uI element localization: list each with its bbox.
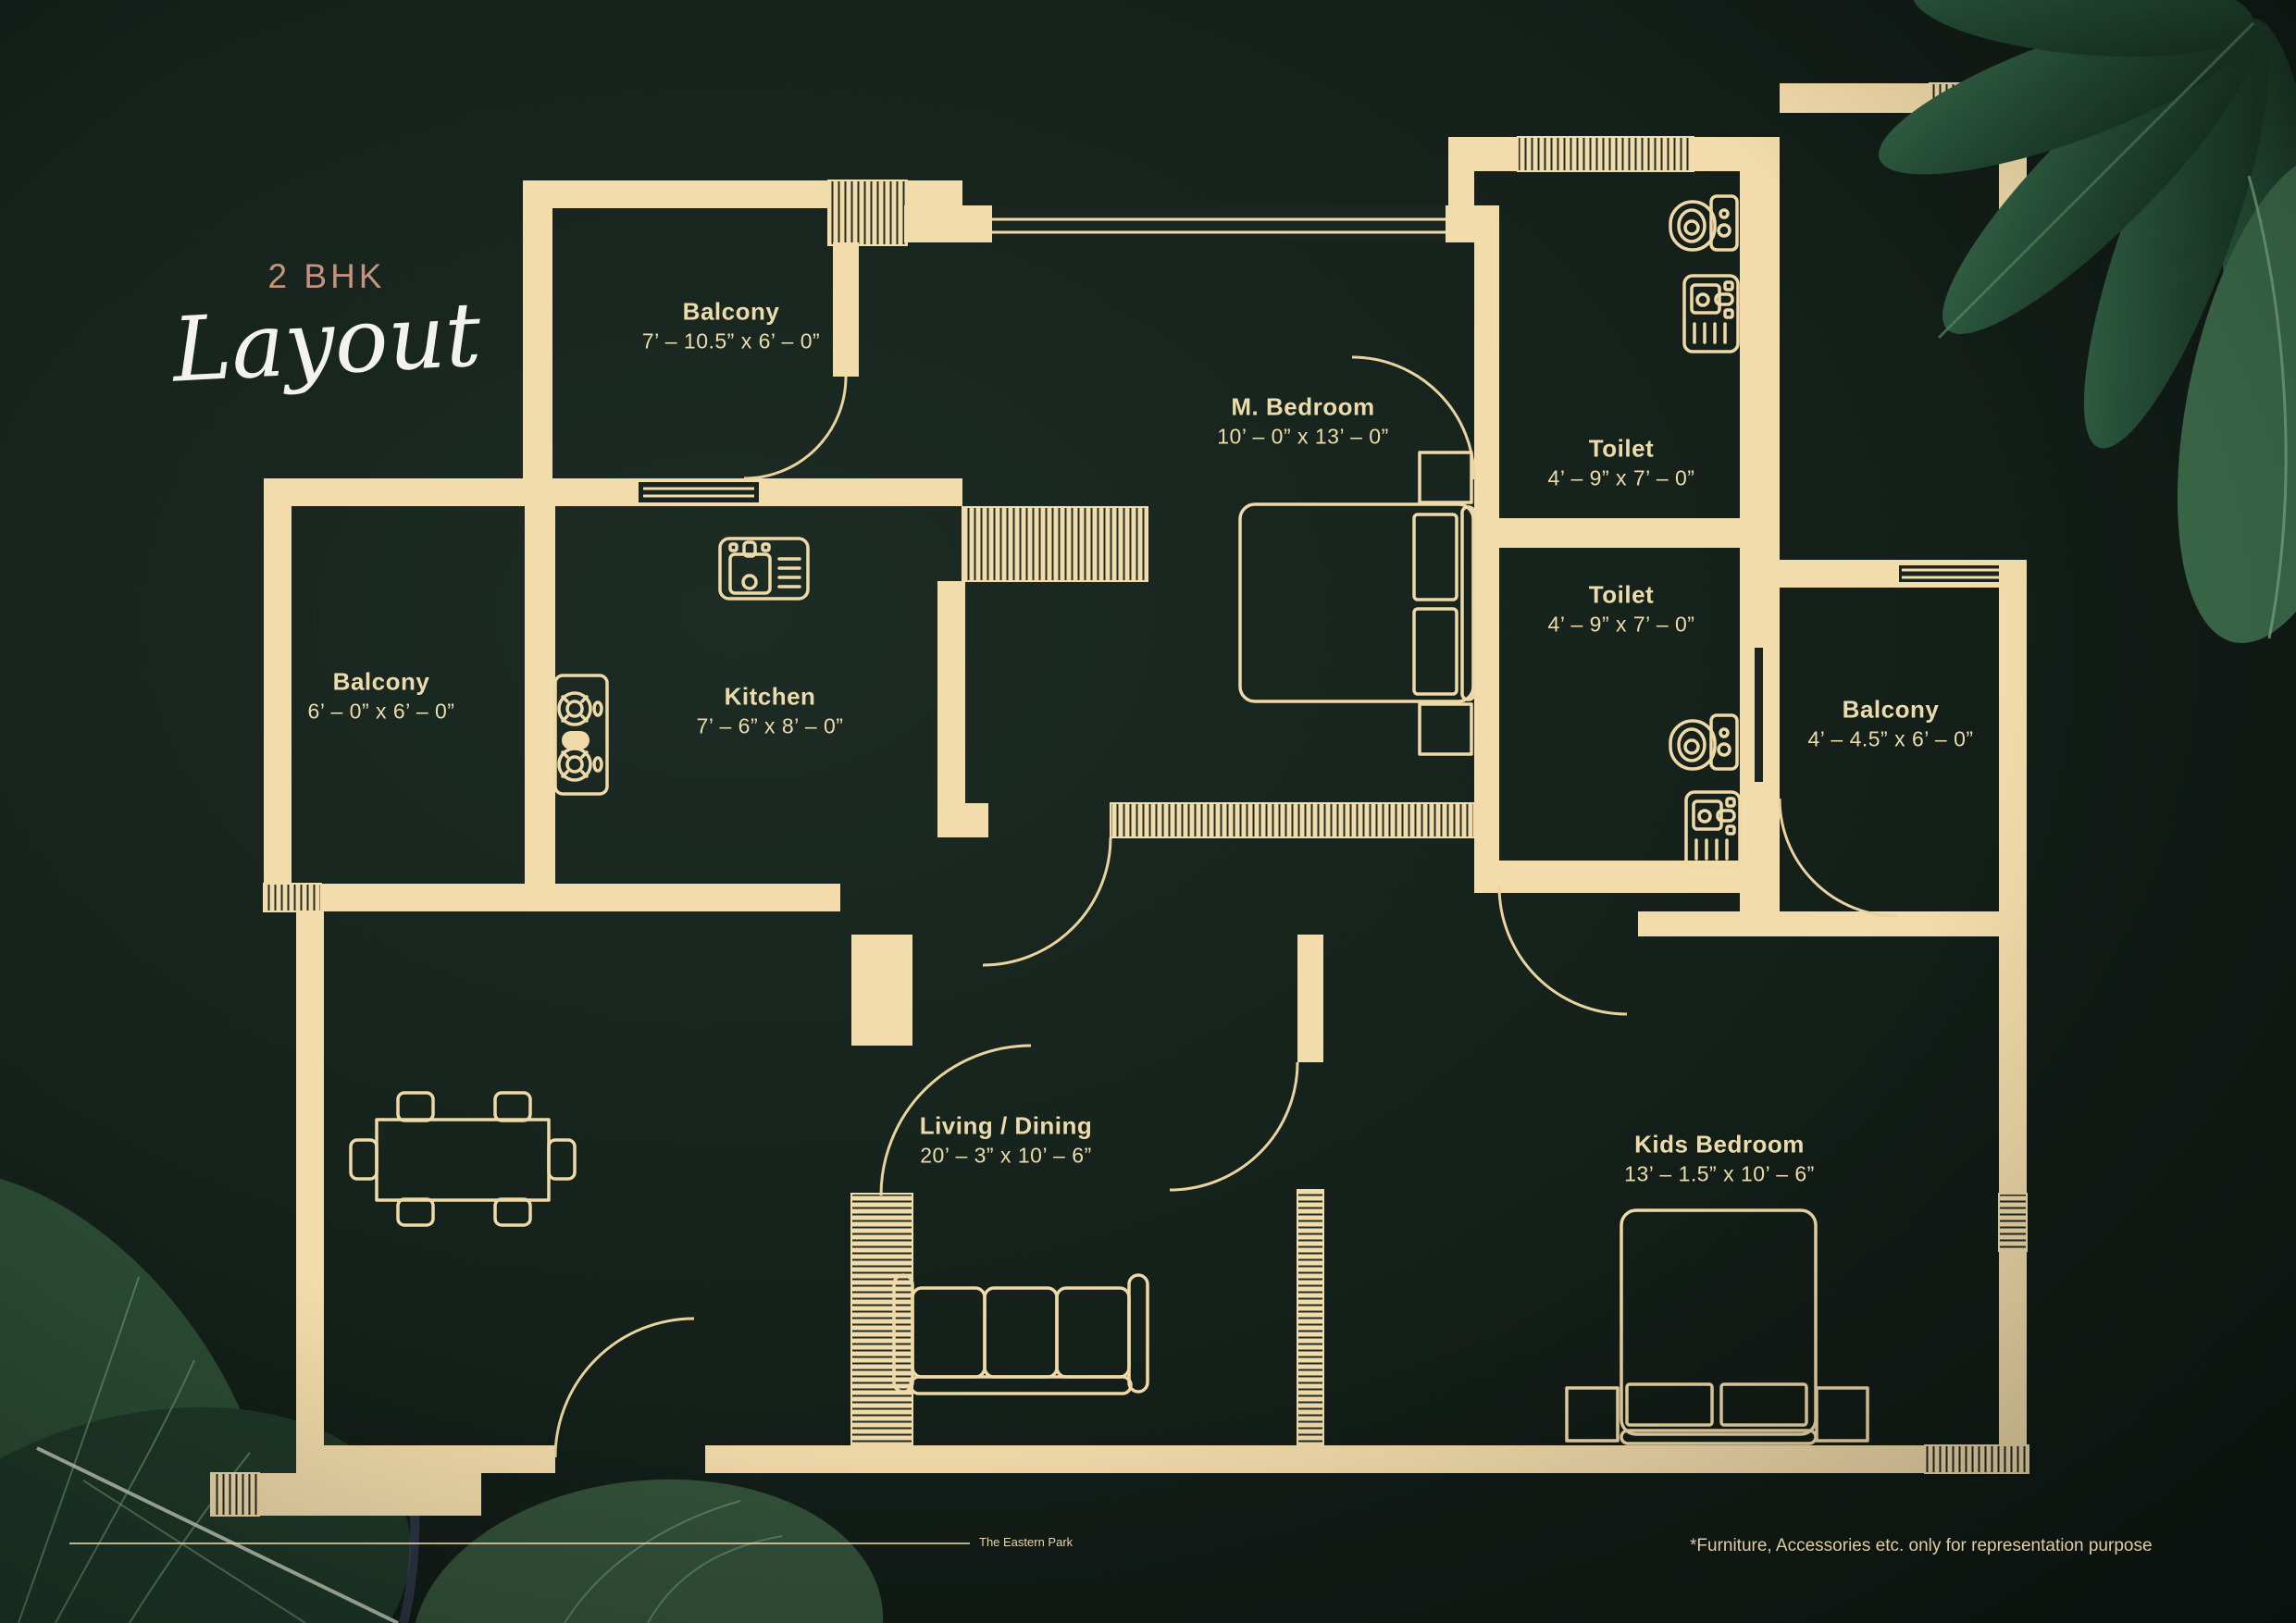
room-name: Balcony — [642, 298, 820, 327]
porch-step — [257, 1473, 481, 1516]
footer-rule — [69, 1542, 970, 1544]
room-dims: 4’ – 4.5” x 6’ – 0” — [1807, 727, 1973, 752]
nightstand-icon — [1420, 452, 1471, 502]
room-dims: 4’ – 9” x 7’ – 0” — [1548, 613, 1695, 638]
room-label-balcony-right: Balcony 4’ – 4.5” x 6’ – 0” — [1807, 696, 1973, 752]
room-dims: 7’ – 10.5” x 6’ – 0” — [642, 329, 820, 354]
room-name: Balcony — [1807, 696, 1973, 725]
hatched-wall — [1999, 1194, 2027, 1251]
room-label-balcony-left: Balcony 6’ – 0” x 6’ – 0” — [308, 668, 455, 725]
hatched-wall — [1111, 803, 1474, 837]
room-dims: 13’ – 1.5” x 10’ – 6” — [1624, 1162, 1815, 1187]
floor-plan-canvas — [0, 0, 2296, 1623]
room-dims: 6’ – 0” x 6’ – 0” — [308, 700, 455, 725]
nightstand-icon — [1817, 1388, 1868, 1441]
hatched-wall — [851, 1194, 912, 1445]
wardrobe-hatch — [962, 507, 1148, 581]
door-arc-kids-bedroom — [1170, 1062, 1297, 1190]
room-name: Kitchen — [697, 683, 844, 712]
room-dims: 10’ – 0” x 13’ – 0” — [1217, 425, 1389, 450]
room-name: M. Bedroom — [1217, 393, 1389, 422]
hatched-wall — [1925, 1445, 2029, 1473]
room-dims: 20’ – 3” x 10’ – 6” — [920, 1144, 1093, 1169]
hatched-wall — [1518, 137, 1694, 171]
hatched-wall — [828, 180, 907, 245]
hatched-wall — [264, 884, 321, 911]
door-arc-balcony-top — [744, 377, 846, 478]
room-dims: 4’ – 9” x 7’ – 0” — [1548, 466, 1695, 491]
kids-bed-icon — [1567, 1210, 1868, 1443]
room-dims: 7’ – 6” x 8’ – 0” — [697, 714, 844, 739]
room-label-kitchen: Kitchen 7’ – 6” x 8’ – 0” — [697, 683, 844, 739]
door-arc-entrance — [555, 1319, 694, 1457]
door-arc-toilet-2 — [1499, 886, 1627, 1014]
room-name: Kids Bedroom — [1624, 1131, 1815, 1159]
dining-table-icon — [351, 1093, 575, 1225]
room-label-toilet-2: Toilet 4’ – 9” x 7’ – 0” — [1548, 581, 1695, 638]
room-name: Living / Dining — [920, 1112, 1093, 1141]
title-block: 2 BHK Layout — [155, 257, 498, 387]
furniture — [351, 196, 1868, 1443]
nightstand-icon — [1420, 704, 1471, 754]
door-arc-balcony-right — [1780, 799, 1897, 916]
footer-brand: The Eastern Park — [979, 1535, 1073, 1549]
room-name: Toilet — [1548, 435, 1695, 464]
sofa-icon — [894, 1275, 1148, 1394]
hatched-wall — [211, 1473, 259, 1516]
nightstand-icon — [1567, 1388, 1618, 1441]
master-bed-icon — [1240, 452, 1474, 754]
room-label-balcony-top: Balcony 7’ – 10.5” x 6’ – 0” — [642, 298, 820, 354]
door-arc-m-bedroom — [983, 837, 1111, 965]
stove-icon — [555, 675, 607, 794]
room-label-m-bedroom: M. Bedroom 10’ – 0” x 13’ – 0” — [1217, 393, 1389, 450]
hatched-wall — [1297, 1190, 1323, 1445]
room-label-kids-bedroom: Kids Bedroom 13’ – 1.5” x 10’ – 6” — [1624, 1131, 1815, 1187]
footer-disclaimer: *Furniture, Accessories etc. only for re… — [1690, 1536, 2153, 1556]
floor-plan-page: 2 BHK Layout Balcony 7’ – 10.5” x 6’ – 0… — [0, 0, 2296, 1623]
room-name: Balcony — [308, 668, 455, 697]
room-label-living-dining: Living / Dining 20’ – 3” x 10’ – 6” — [920, 1112, 1093, 1169]
room-name: Toilet — [1548, 581, 1695, 610]
kitchen-sink-icon — [720, 539, 808, 599]
page-title: Layout — [154, 289, 501, 395]
room-label-toilet-1: Toilet 4’ – 9” x 7’ – 0” — [1548, 435, 1695, 491]
window — [1755, 648, 1763, 782]
